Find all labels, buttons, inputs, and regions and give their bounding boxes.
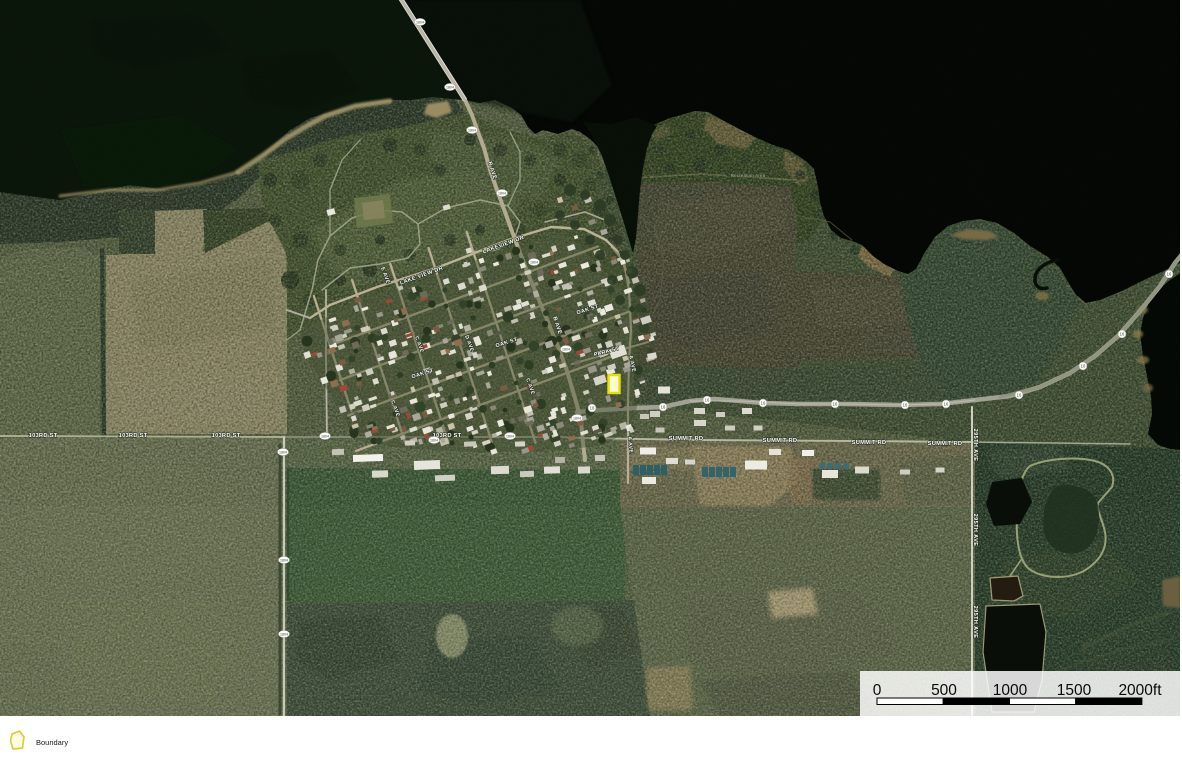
svg-text:295TH AVE: 295TH AVE [972,606,978,639]
svg-text:1804: 1804 [562,347,570,351]
svg-text:1804: 1804 [498,191,506,195]
svg-text:0: 0 [873,682,882,699]
svg-text:16: 16 [661,404,666,409]
svg-text:1804: 1804 [279,450,287,454]
svg-text:SUMMIT RD: SUMMIT RD [763,438,798,444]
svg-text:SUMMIT RD: SUMMIT RD [852,440,887,446]
svg-text:16: 16 [1017,392,1022,397]
svg-text:16: 16 [833,401,838,406]
svg-text:SUMMIT RD: SUMMIT RD [669,436,704,442]
svg-text:1804: 1804 [416,20,424,24]
svg-text:1804: 1804 [530,260,538,264]
svg-text:16: 16 [590,405,595,410]
svg-text:1804: 1804 [430,438,438,442]
svg-text:16: 16 [761,400,766,405]
svg-text:16: 16 [1120,331,1125,336]
svg-text:500: 500 [931,682,957,699]
svg-text:1804: 1804 [506,434,514,438]
svg-text:2000ft: 2000ft [1118,682,1162,699]
svg-text:1804: 1804 [280,558,288,562]
svg-text:1804: 1804 [446,85,454,89]
svg-text:1804: 1804 [280,632,288,636]
svg-text:1804: 1804 [573,416,581,420]
svg-text:1804: 1804 [321,434,329,438]
svg-text:103RD ST: 103RD ST [119,433,148,439]
svg-text:295TH AVE: 295TH AVE [972,514,978,547]
svg-text:Boundary: Boundary [36,738,68,747]
svg-text:Recreation Area: Recreation Area [731,173,766,178]
svg-text:16: 16 [1081,363,1086,368]
svg-text:16: 16 [944,401,949,406]
svg-text:1500: 1500 [1057,682,1092,699]
svg-text:295TH AVE: 295TH AVE [972,429,978,462]
svg-text:SUMMIT RD: SUMMIT RD [928,441,963,447]
svg-text:16: 16 [1167,271,1172,276]
svg-text:103RD ST: 103RD ST [212,433,241,439]
svg-text:16: 16 [903,402,908,407]
svg-text:1804: 1804 [468,128,476,132]
svg-text:1000: 1000 [993,682,1028,699]
svg-text:16: 16 [705,397,710,402]
svg-text:103RD ST: 103RD ST [29,433,58,439]
